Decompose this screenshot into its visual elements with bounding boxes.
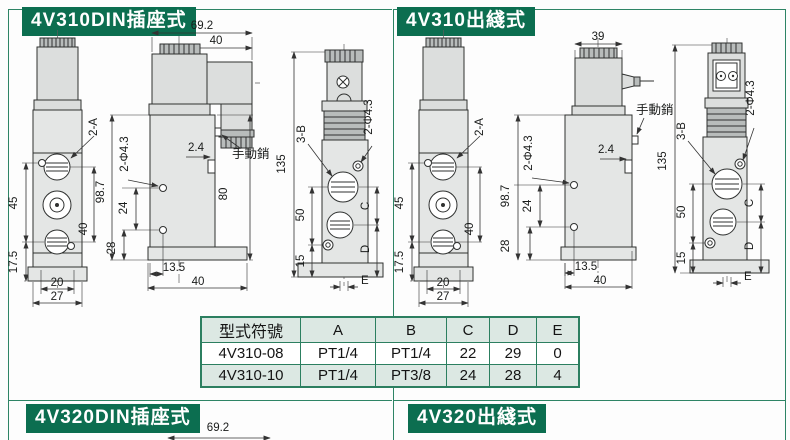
table-cell: PT3/8 — [376, 365, 447, 388]
table-cell: 0 — [537, 343, 580, 365]
coil-cap — [426, 38, 461, 47]
manual-pin-label: 手動銷 — [636, 102, 674, 117]
svg-text:28: 28 — [106, 242, 118, 255]
table-cell: 4V310-08 — [201, 343, 301, 365]
manual-pin — [632, 136, 638, 144]
svg-text:E: E — [361, 275, 369, 287]
mount-hole — [571, 182, 578, 189]
manual-pin — [215, 128, 221, 136]
svg-text:13.5: 13.5 — [163, 262, 185, 274]
svg-text:27: 27 — [437, 291, 450, 303]
svg-text:45: 45 — [8, 197, 20, 210]
section-title-4v320-wire: 4V320出綫式 — [408, 404, 546, 433]
svg-text:C: C — [360, 202, 372, 210]
coil-rings — [324, 111, 365, 140]
svg-text:50: 50 — [676, 206, 688, 219]
label-plate — [208, 160, 215, 173]
svg-text:24: 24 — [522, 199, 534, 212]
svg-text:40: 40 — [192, 276, 205, 288]
solenoid-coil — [423, 47, 464, 100]
table-row: 4V310-10 PT1/4 PT3/8 24 28 4 — [201, 365, 579, 388]
svg-text:2-Φ4.3: 2-Φ4.3 — [119, 136, 131, 171]
table-cell: 4V310-10 — [201, 365, 301, 388]
svg-text:2-A: 2-A — [474, 118, 486, 136]
end-view: 135 3-B 50 15 2-Φ4.3 C D E — [657, 38, 769, 287]
drawing-4v310-wire: 45 17.5 40 2-A 20 27 39 — [394, 16, 776, 316]
svg-text:17.5: 17.5 — [394, 251, 406, 273]
mount-hole — [68, 243, 75, 250]
svg-text:98.7: 98.7 — [95, 181, 107, 203]
side-view: 39 手動銷 2.4 98.7 28 24 2-Φ4.3 — [500, 31, 674, 289]
svg-text:69.2: 69.2 — [191, 20, 213, 32]
svg-text:135: 135 — [276, 154, 288, 173]
din-connector-arm — [207, 62, 252, 104]
coil-rings — [707, 108, 746, 137]
svg-text:69.2: 69.2 — [207, 422, 229, 434]
svg-text:15: 15 — [676, 252, 688, 265]
table-cell: PT1/4 — [301, 365, 376, 388]
svg-text:2-A: 2-A — [88, 118, 100, 136]
svg-text:C: C — [744, 199, 756, 207]
svg-text:27: 27 — [51, 291, 64, 303]
table-header: A — [301, 317, 376, 343]
svg-text:3-B: 3-B — [676, 122, 688, 140]
manual-pin-label: 手動銷 — [232, 146, 270, 161]
svg-text:40: 40 — [210, 35, 223, 47]
mount-hole — [425, 160, 432, 167]
table-cell: 24 — [447, 365, 490, 388]
base-plate — [561, 247, 636, 260]
svg-text:2-Φ4.3: 2-Φ4.3 — [363, 99, 375, 134]
connector-cap — [325, 50, 363, 62]
solenoid-coil — [575, 58, 622, 106]
svg-text:98.7: 98.7 — [500, 185, 512, 207]
svg-text:2-Φ4.3: 2-Φ4.3 — [745, 80, 757, 115]
svg-text:28: 28 — [500, 240, 512, 253]
svg-text:50: 50 — [295, 209, 307, 222]
solenoid-coil — [152, 54, 207, 104]
svg-text:45: 45 — [394, 197, 406, 210]
table-row: 4V310-08 PT1/4 PT1/4 22 29 0 — [201, 343, 579, 365]
table-header: 型式符號 — [201, 317, 301, 343]
end-view: 135 3-B 50 15 2-Φ4.3 C D E — [276, 44, 383, 291]
svg-text:13.5: 13.5 — [575, 261, 597, 273]
table-header: E — [537, 317, 580, 343]
mount-hole — [160, 227, 167, 234]
table-cell: 4 — [537, 365, 580, 388]
base-plate — [690, 260, 769, 273]
coil-cap — [40, 38, 75, 47]
label-plate — [625, 160, 632, 173]
table-cell: PT1/4 — [301, 343, 376, 365]
svg-text:40: 40 — [464, 223, 476, 236]
side-view: 69.2 40 2.4 手動銷 80 — [95, 20, 270, 291]
svg-text:17.5: 17.5 — [8, 251, 20, 273]
catalog-page: 4V310DIN插座式 4V310出綫式 4V320DIN插座式 4V320出綫… — [0, 0, 790, 440]
base-plate — [298, 263, 383, 277]
svg-text:3-B: 3-B — [296, 125, 308, 143]
svg-text:24: 24 — [118, 201, 130, 214]
table-header: C — [447, 317, 490, 343]
solenoid-coil — [37, 47, 78, 100]
table-header: B — [376, 317, 447, 343]
table-cell: 29 — [490, 343, 537, 365]
mount-hole — [454, 243, 461, 250]
svg-text:40: 40 — [78, 223, 90, 236]
model-dimension-table: 型式符號 A B C D E 4V310-08 PT1/4 PT1/4 22 2… — [200, 316, 580, 388]
table-header: D — [490, 317, 537, 343]
svg-text:D: D — [744, 242, 756, 250]
svg-text:2-Φ4.3: 2-Φ4.3 — [523, 135, 535, 170]
table-header-row: 型式符號 A B C D E — [201, 317, 579, 343]
svg-text:2.4: 2.4 — [598, 144, 615, 156]
drawing-4v320-din-partial: 69.2 — [8, 404, 390, 440]
din-connector — [221, 104, 252, 130]
svg-text:20: 20 — [51, 277, 64, 289]
svg-text:E: E — [744, 271, 752, 283]
front-view: 45 17.5 40 2-A 20 27 — [8, 30, 100, 307]
svg-text:15: 15 — [295, 255, 307, 268]
mount-hole — [39, 160, 46, 167]
front-view: 45 17.5 40 2-A 20 27 — [394, 30, 486, 307]
svg-text:135: 135 — [657, 151, 669, 170]
mount-hole — [160, 185, 167, 192]
valve-body — [150, 115, 215, 247]
svg-text:80: 80 — [218, 188, 230, 201]
svg-text:39: 39 — [592, 31, 605, 43]
drawing-4v310-din: 45 17.5 40 2-A 20 27 69.2 40 — [8, 16, 390, 316]
table-cell: PT1/4 — [376, 343, 447, 365]
svg-text:D: D — [360, 245, 372, 253]
svg-text:40: 40 — [594, 275, 607, 287]
table-cell: 28 — [490, 365, 537, 388]
mount-hole — [571, 224, 578, 231]
svg-text:20: 20 — [437, 277, 450, 289]
table-cell: 22 — [447, 343, 490, 365]
wire-gland — [622, 74, 634, 89]
svg-text:2.4: 2.4 — [188, 142, 205, 154]
